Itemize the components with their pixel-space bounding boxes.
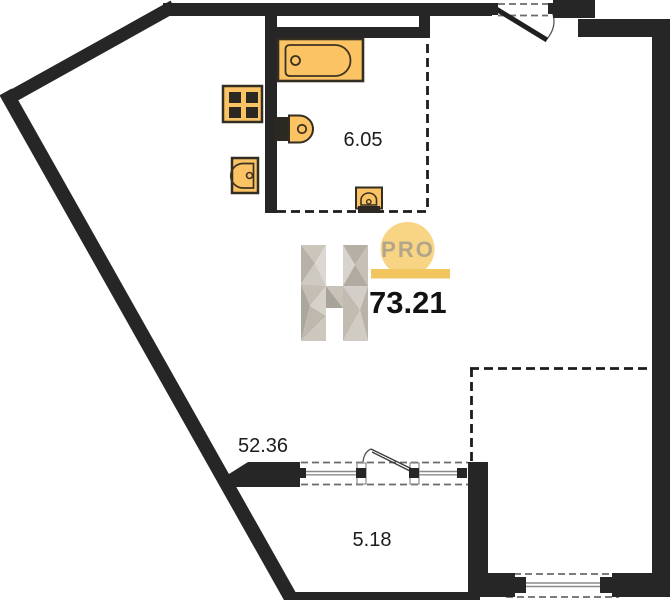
- bathroom-wall-stub: [419, 15, 430, 38]
- floor-plan: 6.05 52.36 5.18: [0, 0, 672, 600]
- sill-cap: [457, 468, 467, 478]
- wall-bottom-right: [612, 573, 670, 597]
- room-area-living: 52.36: [238, 435, 288, 457]
- sill-cap: [296, 468, 306, 478]
- kitchen-sink-icon: [231, 158, 258, 193]
- bathtub-icon: [278, 39, 363, 81]
- sill-cap: [409, 468, 419, 478]
- floor-plan-page: 6.05 52.36 5.18: [0, 0, 672, 600]
- partition-wedge: [221, 462, 300, 487]
- brand-watermark: PRO 73.21: [301, 222, 450, 341]
- loggia-partition: [301, 463, 468, 485]
- wall-top: [163, 3, 492, 16]
- room-area-loggia: 5.18: [353, 529, 392, 551]
- brand-letter-h: [301, 245, 368, 341]
- wall-bottom: [284, 592, 480, 600]
- wall-right: [652, 19, 670, 597]
- wall-top-right: [553, 0, 595, 18]
- total-area-label: 73.21: [369, 285, 447, 320]
- bathroom-wall-vertical: [265, 14, 277, 213]
- wall-diagonal-upper: [9, 10, 168, 99]
- window-post: [514, 577, 526, 593]
- brand-underline-bar: [371, 269, 450, 279]
- kitchen-zone-dashed-boundary: [470, 368, 652, 462]
- sill-cap: [356, 468, 366, 478]
- toilet-icon: [275, 116, 313, 143]
- window-post: [600, 577, 612, 593]
- stove-icon: [223, 86, 262, 122]
- interior-door-swing: [363, 449, 414, 473]
- entrance-door-swing: [489, 3, 557, 40]
- room-area-bathroom: 6.05: [344, 129, 383, 151]
- washbasin-icon: [356, 188, 382, 214]
- wall-column: [468, 462, 488, 597]
- brand-badge-text: PRO: [381, 237, 435, 262]
- bathroom-wall-top: [265, 27, 430, 38]
